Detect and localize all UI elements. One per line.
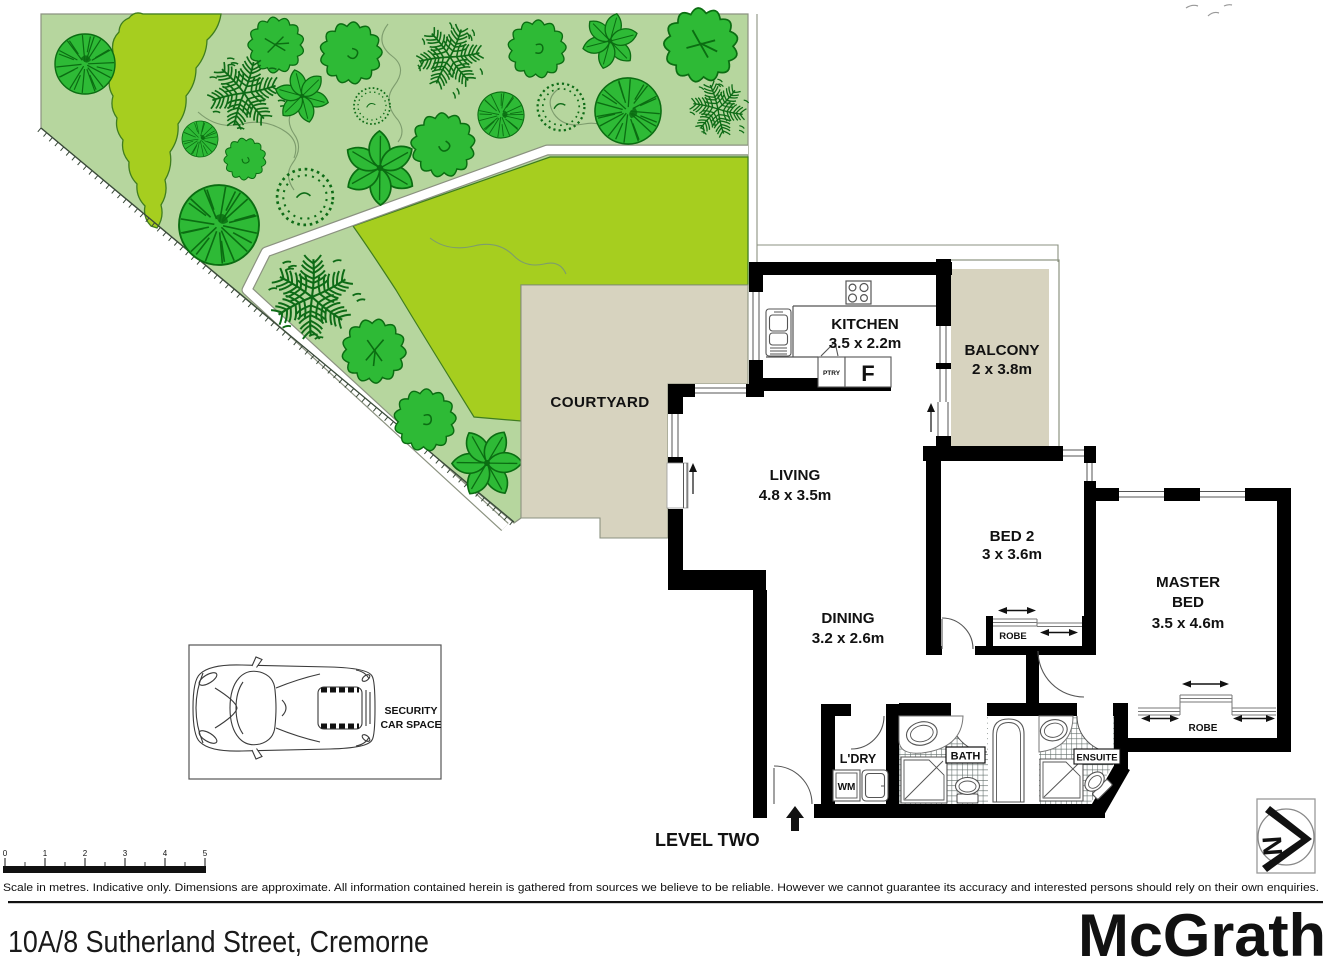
svg-text:WM: WM — [838, 782, 856, 793]
svg-text:4: 4 — [163, 849, 168, 858]
svg-text:ROBE: ROBE — [1189, 723, 1218, 734]
svg-text:MASTER: MASTER — [1156, 574, 1220, 591]
svg-text:ENSUITE: ENSUITE — [1076, 753, 1117, 764]
svg-text:3 x 3.6m: 3 x 3.6m — [982, 546, 1042, 563]
svg-text:BALCONY: BALCONY — [964, 342, 1039, 359]
svg-text:CAR SPACE: CAR SPACE — [380, 719, 441, 731]
svg-text:3.2 x 2.6m: 3.2 x 2.6m — [812, 630, 885, 647]
svg-text:BATH: BATH — [951, 751, 981, 763]
svg-text:ROBE: ROBE — [999, 631, 1026, 642]
svg-text:4.8 x 3.5m: 4.8 x 3.5m — [759, 487, 832, 504]
svg-text:LIVING: LIVING — [770, 467, 821, 484]
svg-text:0: 0 — [3, 849, 8, 858]
svg-text:3.5 x 2.2m: 3.5 x 2.2m — [829, 335, 902, 352]
svg-text:COURTYARD: COURTYARD — [550, 394, 649, 411]
svg-text:2: 2 — [83, 849, 88, 858]
svg-text:L'DRY: L'DRY — [840, 752, 877, 766]
svg-text:1: 1 — [43, 849, 48, 858]
svg-text:BED 2: BED 2 — [990, 528, 1035, 545]
svg-text:SECURITY: SECURITY — [384, 705, 437, 717]
svg-text:5: 5 — [203, 849, 208, 858]
svg-text:10A/8 Sutherland Street, Cremo: 10A/8 Sutherland Street, Cremorne — [8, 924, 429, 959]
svg-text:Scale in metres. Indicative on: Scale in metres. Indicative only. Dimens… — [3, 882, 1319, 894]
svg-text:McGrath: McGrath — [1078, 902, 1326, 960]
svg-text:DINING: DINING — [821, 610, 874, 627]
svg-text:KITCHEN: KITCHEN — [831, 316, 899, 333]
svg-text:3.5 x 4.6m: 3.5 x 4.6m — [1152, 615, 1225, 632]
svg-text:PTRY: PTRY — [823, 370, 841, 377]
svg-text:F: F — [861, 361, 874, 386]
svg-text:LEVEL TWO: LEVEL TWO — [655, 830, 760, 850]
svg-text:3: 3 — [123, 849, 128, 858]
svg-text:2 x 3.8m: 2 x 3.8m — [972, 361, 1032, 378]
svg-text:N: N — [1256, 835, 1287, 857]
svg-text:BED: BED — [1172, 594, 1204, 611]
